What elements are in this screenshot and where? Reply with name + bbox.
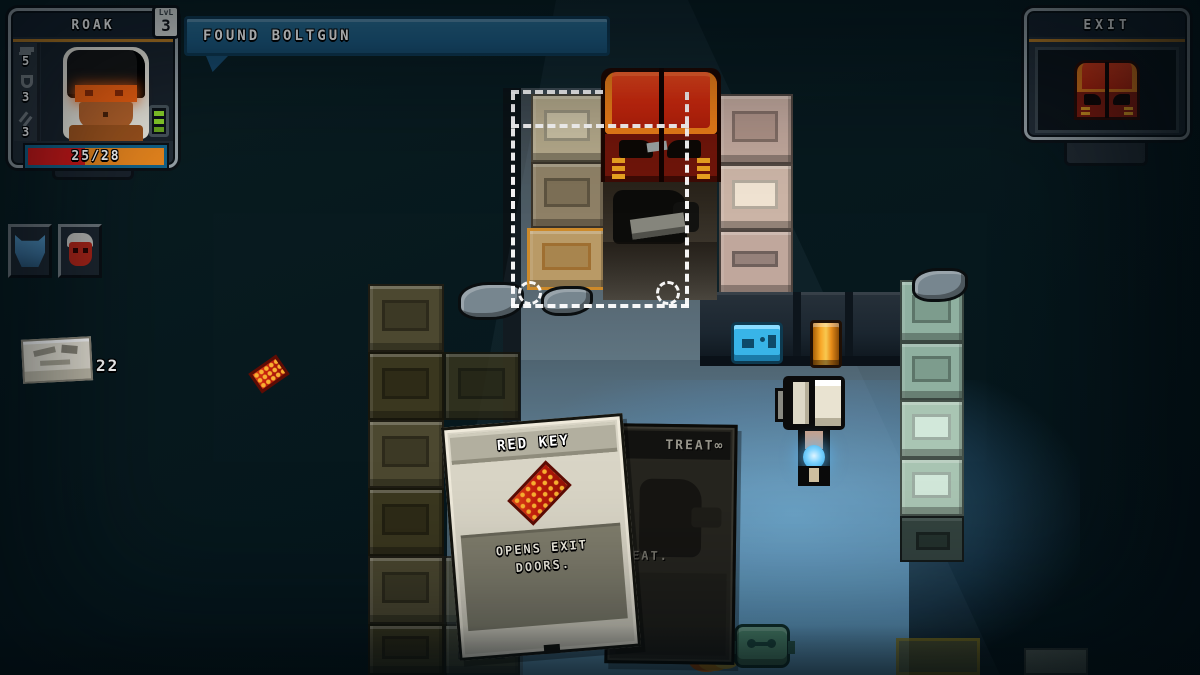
crate-panel xyxy=(544,178,590,208)
door-hazard-dashes xyxy=(612,158,625,163)
card-title: RED KEY xyxy=(496,432,570,454)
backpack-panel xyxy=(815,380,841,426)
ammo-box-scribble xyxy=(40,359,70,366)
equipment-slot-armor[interactable] xyxy=(8,224,52,278)
door-window xyxy=(667,140,701,158)
game-screen: TREAT∞ REAT. RED KEY OPENS EXIT DOORS. R… xyxy=(0,0,1200,675)
exit-panel-foot xyxy=(1064,140,1148,166)
card-art-device-arm xyxy=(691,507,721,527)
crate-tile[interactable] xyxy=(900,458,964,516)
character-name: ROAK xyxy=(71,18,114,33)
card-title-bar: TREAT∞ xyxy=(614,430,730,460)
mask-eye xyxy=(73,248,78,253)
crate-panel xyxy=(382,504,430,535)
exit-panel: EXIT xyxy=(1024,8,1190,140)
portrait-eye xyxy=(115,90,123,96)
crate-panel xyxy=(916,532,950,550)
battery-icon xyxy=(149,105,169,137)
crate-tile[interactable] xyxy=(900,342,964,400)
battery-bar xyxy=(154,111,164,116)
player-character[interactable] xyxy=(781,374,847,492)
panel-accent-rule xyxy=(1029,39,1185,42)
health-bar: 25/28 xyxy=(25,145,167,168)
card-description: OPENS EXIT DOORS. xyxy=(476,534,612,630)
selection-corner-circle xyxy=(518,281,542,305)
character-portrait xyxy=(41,43,173,141)
crate-tile[interactable] xyxy=(719,94,793,164)
door-icon-window xyxy=(1113,94,1130,105)
crate-tile[interactable] xyxy=(1024,648,1088,675)
selection-corner-circle xyxy=(656,281,680,305)
crate-panel xyxy=(382,300,430,331)
crate-tile[interactable] xyxy=(719,164,793,230)
crate-panel xyxy=(732,111,778,143)
portrait-mouth xyxy=(103,112,108,117)
crate-panel xyxy=(732,251,778,267)
exit-panel-header: EXIT xyxy=(1029,13,1185,37)
character-panel: ROAK LvL 3 5 3 3 xyxy=(8,8,178,168)
crate-tile[interactable] xyxy=(531,94,605,162)
crate-tile[interactable] xyxy=(368,556,444,624)
card-description-band: OPENS EXIT DOORS. xyxy=(461,523,628,632)
portrait-eye xyxy=(85,90,93,96)
item-card-red-key[interactable]: RED KEY OPENS EXIT DOORS. xyxy=(441,413,641,661)
crate-panel xyxy=(912,472,952,498)
crate-tile[interactable] xyxy=(900,400,964,458)
player-boots xyxy=(798,466,830,486)
mask-eye xyxy=(83,248,88,253)
battery-pickup[interactable] xyxy=(810,320,842,368)
notification-text: FOUND BOLTGUN xyxy=(203,28,352,44)
panel-accent-rule xyxy=(13,39,173,42)
exit-panel-body xyxy=(1035,47,1179,133)
stats-column: 5 3 3 xyxy=(14,43,40,141)
shield-icon xyxy=(21,75,33,88)
crate-panel xyxy=(912,356,952,382)
exit-title: EXIT xyxy=(1083,18,1130,33)
card-title: TREAT∞ xyxy=(665,437,724,453)
crate-tile[interactable] xyxy=(368,284,444,352)
backpack-panel xyxy=(793,382,809,424)
mask-face xyxy=(69,242,92,266)
crate-panel xyxy=(542,243,591,270)
door-hazard-dashes xyxy=(697,158,710,163)
stat-attack-value: 5 xyxy=(22,54,31,68)
claw-icon xyxy=(19,111,29,122)
health-text: 25/28 xyxy=(71,149,120,164)
selection-mid-line xyxy=(511,124,689,128)
crate-panel xyxy=(382,436,430,467)
supply-box-blue[interactable] xyxy=(731,322,783,364)
ammo-count: 22 xyxy=(96,356,119,375)
crate-tile[interactable] xyxy=(896,638,980,675)
shelf-slot-divider xyxy=(845,292,853,356)
red-keycard-art xyxy=(507,460,572,525)
portrait-eyes-glow xyxy=(75,85,137,102)
crate-panel xyxy=(382,636,430,659)
door-icon-window xyxy=(1084,94,1101,105)
selection-edge-top xyxy=(511,90,603,94)
character-panel-header: ROAK xyxy=(13,13,173,37)
stat-armor-value: 3 xyxy=(22,90,31,104)
character-panel-foot xyxy=(52,168,134,180)
crate-tile[interactable] xyxy=(444,352,520,420)
selection-edge-bottom xyxy=(511,304,689,308)
ammo-box-scribble xyxy=(33,346,56,357)
box-marking xyxy=(742,339,754,348)
crate-panel xyxy=(458,368,506,399)
notification-bar: FOUND BOLTGUN xyxy=(184,16,610,56)
crate-tile[interactable] xyxy=(368,488,444,556)
door-icon-seam xyxy=(1105,62,1109,118)
door-window-glint xyxy=(646,141,667,153)
crate-panel xyxy=(382,572,430,603)
crate-tile[interactable] xyxy=(531,162,605,228)
stat-melee-value: 3 xyxy=(22,125,31,139)
gun-icon xyxy=(20,47,34,52)
armor-icon xyxy=(15,235,45,267)
crate-panel xyxy=(732,180,778,210)
shelf-slot-divider xyxy=(793,292,801,356)
exit-door-icon xyxy=(1074,60,1140,120)
ammo-box-scribble xyxy=(61,345,78,354)
equipment-slot-mask[interactable] xyxy=(58,224,102,278)
grenade-band xyxy=(754,642,769,646)
box-marking xyxy=(768,335,776,348)
mask-icon xyxy=(65,233,95,269)
crate-tile[interactable] xyxy=(719,230,793,294)
crate-panel xyxy=(912,414,952,440)
portrait-shoulders xyxy=(69,125,143,141)
grenade-item[interactable] xyxy=(734,624,790,668)
crate-dark-unit[interactable] xyxy=(900,516,964,562)
grenade-tab xyxy=(788,641,795,654)
crate-tile-orange[interactable] xyxy=(527,228,607,290)
player-backpack xyxy=(783,376,845,430)
level-badge: LvL 3 xyxy=(152,5,180,39)
crate-tile[interactable] xyxy=(368,624,444,675)
door-icon-dashes xyxy=(1124,107,1133,110)
level-value: 3 xyxy=(155,17,177,35)
boot-gap xyxy=(809,468,819,482)
card-title-bar: RED KEY xyxy=(450,422,618,465)
crate-tile[interactable] xyxy=(368,420,444,488)
card-bottom-notch xyxy=(544,644,561,654)
crate-tile[interactable] xyxy=(368,352,444,420)
crate-panel xyxy=(382,368,430,399)
door-icon-dashes xyxy=(1081,107,1090,110)
box-marking xyxy=(760,337,765,342)
player-body xyxy=(798,428,830,470)
ammo-box[interactable] xyxy=(21,336,93,384)
